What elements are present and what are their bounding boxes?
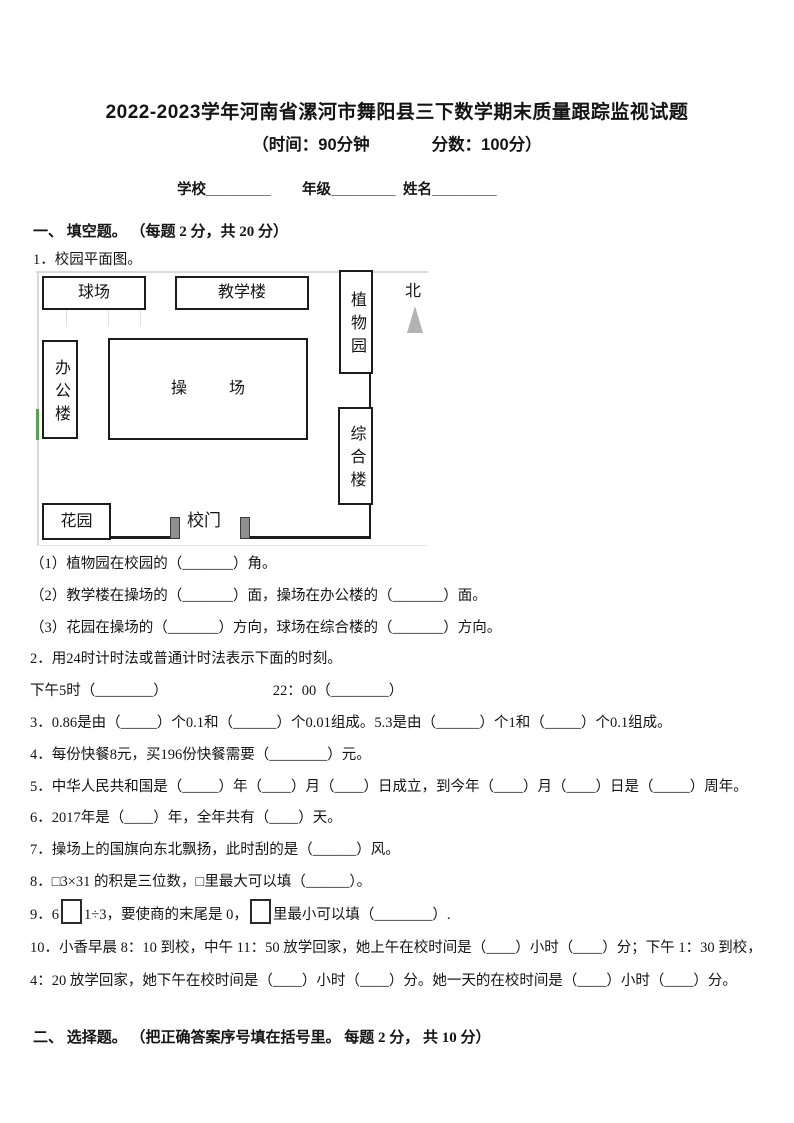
question-9: 9．61÷3，要使商的末尾是 0，里最小可以填（________）.	[30, 899, 782, 932]
map-building-complex: 综合楼	[338, 407, 373, 505]
question-9-part1: 9．6	[30, 907, 59, 923]
question-10: 10．小香早晨 8：10 到校，中午 11：50 放学回家，她上午在校时间是（_…	[30, 932, 782, 1000]
office-building-label: 办公楼	[52, 352, 68, 428]
digit-box-icon	[61, 899, 82, 924]
school-gate-label: 校门	[187, 506, 221, 531]
student-info-row: 学校________ 年级________ 姓名________	[0, 178, 794, 200]
map-green-mark	[36, 409, 39, 440]
question-7: 7．操场上的国旗向东北飘扬，此时刮的是（______）风。	[30, 835, 782, 867]
question-9-part2: 1÷3，要使商的末尾是 0，	[84, 907, 248, 923]
gate-post-left	[170, 517, 180, 539]
map-building-ball-field: 球场	[42, 276, 146, 310]
question-2-blank-afternoon: 下午5时（________）	[30, 683, 168, 699]
grid-tick	[66, 310, 67, 326]
exam-paper-page: 2022-2023学年河南省漯河市舞阳县三下数学期末质量跟踪监视试题 （时间：9…	[0, 0, 794, 1123]
school-field: 学校________	[177, 178, 271, 199]
question-1-2: （2）教学楼在操场的（_______）面，操场在办公楼的（_______）面。	[30, 581, 782, 613]
north-arrow-icon	[407, 306, 423, 333]
total-score-label: 分数：100分）	[432, 131, 542, 155]
grid-tick	[108, 310, 109, 326]
botanical-garden-label: 植物园	[348, 284, 364, 360]
question-9-part3: 里最小可以填（________）.	[273, 907, 451, 923]
question-2: 2．用24时计时法或普通计时法表示下面的时刻。	[30, 644, 782, 676]
grid-tick	[140, 310, 141, 326]
playground-label: 操场	[171, 381, 287, 397]
question-1-lead: 1．校园平面图。	[33, 248, 142, 269]
map-building-office: 办公楼	[42, 340, 78, 439]
map-bottom-wall-right	[247, 536, 371, 539]
section-two-heading: 二、 选择题。 （把正确答案序号填在括号里。 每题 2 分， 共 10 分）	[33, 1026, 491, 1047]
map-building-garden: 花园	[42, 503, 111, 540]
question-1-3: （3）花园在操场的（_______）方向，球场在综合楼的（_______）方向。	[30, 613, 782, 645]
question-1-1: （1）植物园在校园的（_______）角。	[30, 549, 782, 581]
teaching-building-label: 教学楼	[218, 285, 266, 301]
garden-label: 花园	[60, 514, 92, 530]
name-field: 姓名________	[403, 178, 497, 199]
time-limit-label: （时间：90分钟	[252, 131, 369, 155]
fill-in-questions-block: （1）植物园在校园的（_______）角。 （2）教学楼在操场的（_______…	[30, 549, 782, 999]
complex-building-label: 综合楼	[348, 418, 364, 494]
question-6: 6．2017年是（____）年，全年共有（____）天。	[30, 803, 782, 835]
digit-box-icon	[250, 899, 271, 924]
question-5: 5．中华人民共和国是（_____）年（____）月（____）日成立，到今年（_…	[30, 772, 782, 804]
question-3: 3．0.86是由（_____）个0.1和（______）个0.01组成。5.3是…	[30, 708, 782, 740]
campus-map-diagram: 球场 教学楼 植物园 办公楼 操场 综合楼 花园 校门 北	[36, 268, 434, 550]
north-label: 北	[405, 277, 421, 301]
section-one-heading: 一、 填空题。 （每题 2 分，共 20 分）	[33, 220, 288, 241]
question-4: 4．每份快餐8元，买196份快餐需要（________）元。	[30, 740, 782, 772]
map-building-teaching: 教学楼	[175, 276, 309, 310]
question-2-blanks: 下午5时（________）22：00（________）	[30, 676, 782, 708]
map-bottom-faint-line	[36, 545, 428, 546]
question-8: 8．□3×31 的积是三位数，□里最大可以填（______）。	[30, 867, 782, 899]
page-title: 2022-2023学年河南省漯河市舞阳县三下数学期末质量跟踪监视试题	[0, 97, 794, 124]
question-2-blank-2200: 22：00（________）	[273, 683, 404, 699]
map-building-playground: 操场	[108, 338, 308, 440]
exam-meta-row: （时间：90分钟 分数：100分）	[0, 131, 794, 155]
ball-field-label: 球场	[78, 285, 110, 301]
gate-post-right	[240, 517, 250, 539]
grade-field: 年级________	[302, 178, 396, 199]
map-building-botanical-garden: 植物园	[339, 270, 373, 374]
